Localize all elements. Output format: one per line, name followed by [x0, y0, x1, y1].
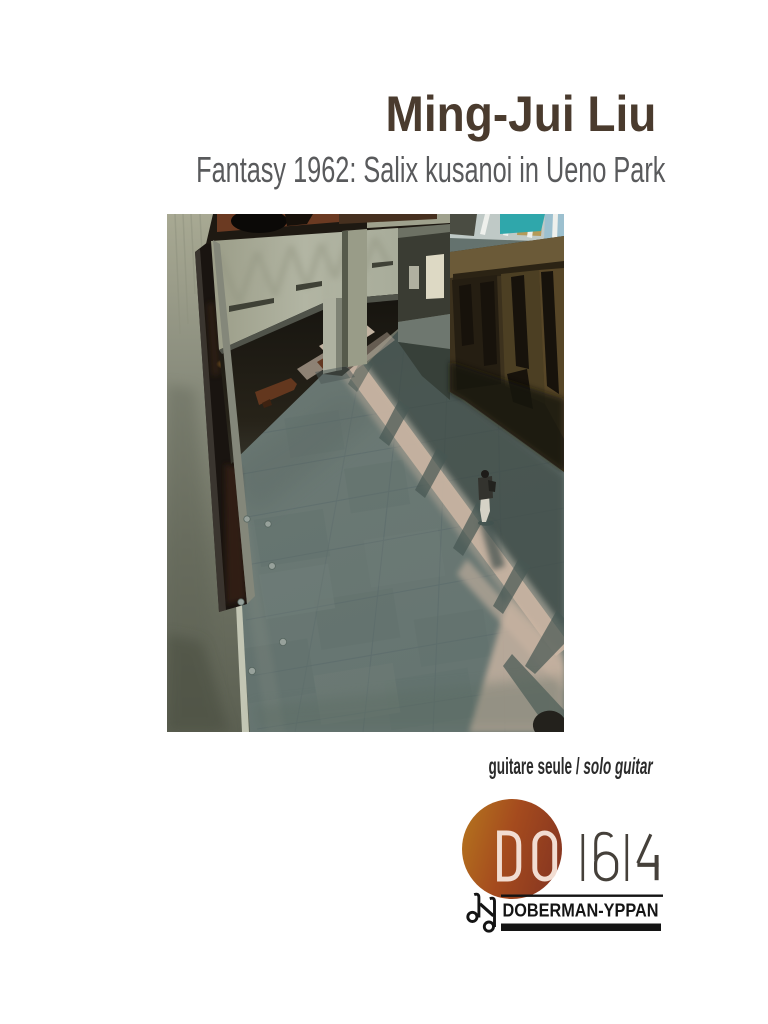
svg-text:DOBERMAN-YPPAN: DOBERMAN-YPPAN [503, 901, 659, 921]
